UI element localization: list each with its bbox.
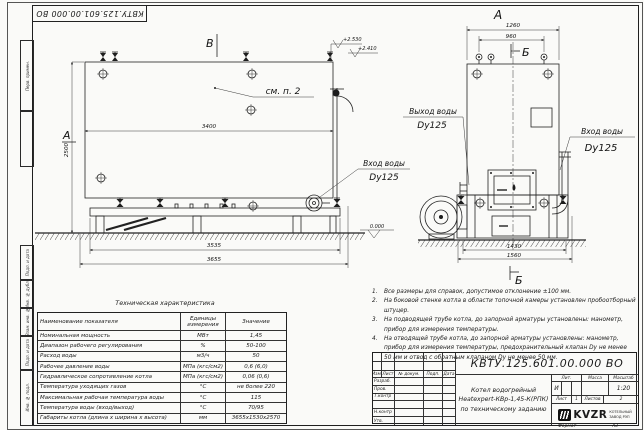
spec-name: Рабочее давление воды [38,362,181,371]
spec-value: 0,6 (6,0) [226,362,286,371]
tb-doc-number: КВТУ.125.601.00.000 ВО [456,353,638,375]
side-view: А [403,8,635,287]
tb-col-list: Лист [382,371,395,378]
lifting-eye-icon [247,200,259,212]
spec-header-value: Значение [226,313,286,330]
elevation-2: +2.410 [358,46,377,52]
tb-logo-cell: KVZR КОТЕЛЬНЫЙ ЗАВОД РЭП [552,404,638,425]
tb-mass-value [582,382,609,396]
title-block: Изм. Лист № докум. Подп. Дата Разраб. Пр… [372,352,637,424]
outlet-callout: Выход воды Dy125 [403,107,469,185]
roof-stubs [476,54,547,64]
tb-description-line1: Котел водогрейный [471,386,536,395]
spec-row: Максимальная рабочая температура воды °С… [38,392,286,402]
note-text: На подводящей трубе котла, до запорной а… [384,316,636,335]
note-item: 1. Все размеры для справок, допустимое о… [372,288,636,297]
lifting-eye-icon [97,68,109,80]
ground-side [418,240,586,247]
note-text: Все размеры для справок, допустимое откл… [384,288,636,297]
outlet-label: Выход воды [409,107,457,116]
dim-front-overall: 3655 [207,257,222,263]
tb-col-podp: Подп. [424,371,443,378]
tb-sheets-value: 2 [604,396,638,404]
dim-side-bottom-inner: 1430 [507,244,522,250]
tb-scale-value: 1:20 [609,382,638,396]
note-item: 3. На подводящей трубе котла, до запорно… [372,316,636,335]
front-inlet-label: Вход воды [363,159,405,168]
tb-lit-label: Лит. [552,375,582,382]
spec-header-name: Наименование показателя [38,313,181,330]
side-inlet-dn: Dy125 [585,143,618,154]
tb-sheets-label: Листов [582,396,604,404]
note-number: 3. [372,316,384,335]
section-b-top: Б [522,46,530,59]
tb-row-prov: Пров. [373,386,395,394]
spec-units: м3/ч [181,352,226,361]
dim-front-height: 2500 [64,142,70,157]
spec-table: Наименование показателя Единицы измерени… [37,312,287,424]
spec-units: МПа (кгс/см2) [181,362,226,371]
drawing-sheet: { "stamp": { "doc_number": "КВТУ.125.601… [0,0,644,430]
side-inlet-label: Вход воды [581,127,623,136]
spec-units: МВт [181,331,226,340]
dim-side-top-outer: 1260 [506,23,521,29]
tb-description: Котел водогрейный Heatexpert-КВр-1,45-К(… [456,375,552,425]
tb-lit-value: И [552,382,562,396]
zero-elevation: 0.000 [360,224,394,238]
spec-row: Номинальная мощность МВт 1,45 [38,330,286,340]
kvzr-logo-icon [558,409,571,421]
spec-header-row: Наименование показателя Единицы измерени… [38,313,286,330]
spec-units: МПа (кгс/см2) [181,372,226,381]
zero-elevation-text: 0.000 [370,224,384,230]
tb-mass-label: Масса [582,375,609,382]
dim-front-width: 3400 [202,124,217,130]
spec-row: Диапазон рабочего регулирования % 50-100 [38,340,286,350]
lifting-eye-icon [95,172,107,184]
boiler-body-front [85,62,333,198]
dim-side-bottom-outer: 1560 [507,253,522,259]
section-mark-bottom: Б [510,266,523,287]
section-b-bottom: Б [515,274,523,287]
outlet-nozzle [460,182,467,194]
ash-door [492,216,530,236]
spec-name: Температура воды (вход/выход) [38,403,181,412]
spec-units: °С [181,383,226,392]
note-number: 2. [372,297,384,316]
side-inlet-callout: Вход воды Dy125 [560,127,635,170]
spec-value: 3655х1530х2570 [226,414,286,423]
side-view-title: А [493,8,502,22]
dim-side-top-inner: 960 [506,34,517,40]
spec-row: Рабочее давление воды МПа (кгс/см2) 0,6 … [38,361,286,371]
spec-value: 50-100 [226,341,286,350]
kvzr-logo-caption: КОТЕЛЬНЫЙ ЗАВОД РЭП [609,410,631,419]
format-label: Формат [558,424,576,429]
spec-units: % [181,341,226,350]
tb-description-line2: Heatexpert-КВр-1,45-К(РПК) [459,395,549,404]
inlet-flange [306,195,330,211]
lifting-eye-icon [474,197,486,209]
tb-row-utv: Утв. [373,417,395,425]
note-item: 2. На боковой стенке котла в области топ… [372,297,636,316]
spec-units: °С [181,393,226,402]
spec-units: °С [181,403,226,412]
spec-row: Температура уходящих газов °С не более 2… [38,382,286,392]
spec-name: Гидравлическое сопротивление котла [38,372,181,381]
outlet-riser-pipe [330,88,353,203]
inspection-hatch [531,108,552,127]
tb-sheet-label: Лист [552,396,572,404]
spec-name: Расход воды [38,352,181,361]
tb-row-blank [373,401,395,409]
spec-value: 1,45 [226,331,286,340]
tb-row-nkontr: Н.контр [373,409,395,417]
tb-row-razrab: Разраб. [373,378,395,386]
ground-front [35,233,365,240]
elevation-1: +2.530 [343,37,362,43]
spec-row: Гидравлическое сопротивление котла МПа (… [38,371,286,381]
spec-name: Максимальная рабочая температура воды [38,393,181,402]
tb-scale-label: Масштаб [609,375,638,382]
lifting-eye-icon [246,68,258,80]
spec-value: 70/95 [226,403,286,412]
spec-row: Температура воды (вход/выход) °С 70/95 [38,402,286,412]
lifting-eye-icon [471,68,483,80]
spec-table-title: Техническая характеристика [60,299,270,307]
skid-frame [90,204,340,233]
elevation-marks: +2.530 +2.410 [331,37,378,62]
spec-value: не более 220 [226,383,286,392]
spec-value: 115 [226,393,286,402]
spec-row: Расход воды м3/ч 50 [38,351,286,361]
spec-value: 50 [226,352,286,361]
spec-row: Габариты котла (длина х ширина х высота)… [38,413,286,423]
view-arrow-b: В [206,37,214,50]
tb-sheet-value: 1 [572,396,582,404]
spec-name: Диапазон рабочего регулирования [38,341,181,350]
spec-name: Габариты котла (длина х ширина х высота) [38,414,181,423]
tb-description-line3: по техническому заданию [460,405,546,414]
lifting-eye-icon [538,197,550,209]
tb-col-ndocum: № докум. [395,371,424,378]
furnace-base [457,170,568,238]
lifting-eye-icon [245,104,257,116]
front-inlet-dn: Dy125 [369,173,399,183]
section-mark-top: Б [511,44,530,59]
outlet-dn: Dy125 [417,121,447,131]
spec-header-units: Единицы измерения [181,313,226,330]
lifting-eye-icon [542,68,554,80]
front-view: 3400 2500 3535 3655 +2.530 +2.410 В А [35,34,410,268]
format-value: А3 [612,424,618,429]
kvzr-logo-text: KVZR [573,409,607,421]
view-arrow-a: А [62,129,71,142]
spec-name: Номинальная мощность [38,331,181,340]
front-inlet-callout: Вход воды Dy125 [320,159,410,197]
note-number: 1. [372,288,384,297]
tb-col-izm: Изм. [373,371,382,378]
format-footer: Формат А3 [540,424,636,429]
see-note-text: см. п. 2 [266,87,301,97]
spec-units: мм [181,414,226,423]
see-note-callout: см. п. 2 [214,87,314,97]
tb-col-data: Дата [443,371,456,378]
tb-row-tkontr: Т.контр [373,394,395,402]
dim-front-base: 3535 [207,243,222,249]
spec-name: Температура уходящих газов [38,383,181,392]
note-text: На боковой стенке котла в области топочн… [384,297,636,316]
spec-value: 0,06 (0,6) [226,372,286,381]
